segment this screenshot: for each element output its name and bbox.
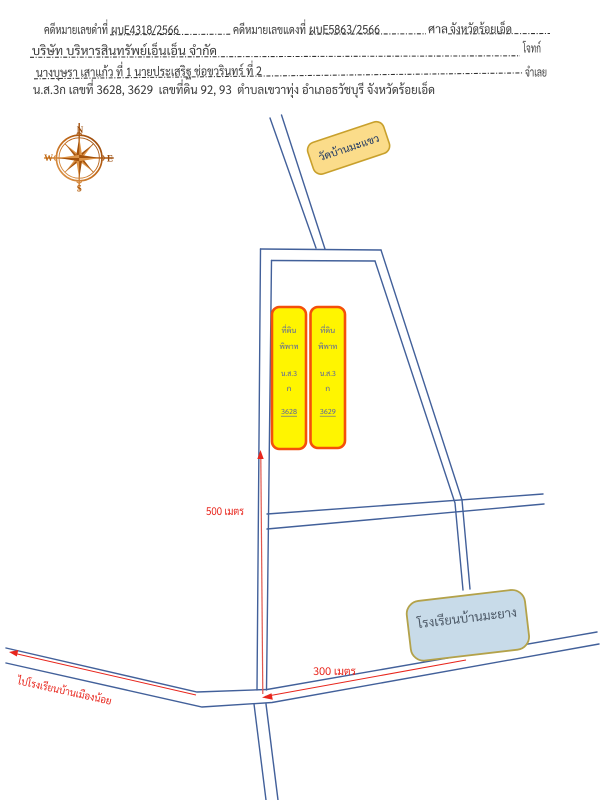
svg-text:E: E	[107, 154, 113, 164]
svg-text:N: N	[77, 125, 84, 135]
svg-text:S: S	[77, 183, 82, 193]
svg-text:W: W	[44, 153, 53, 163]
